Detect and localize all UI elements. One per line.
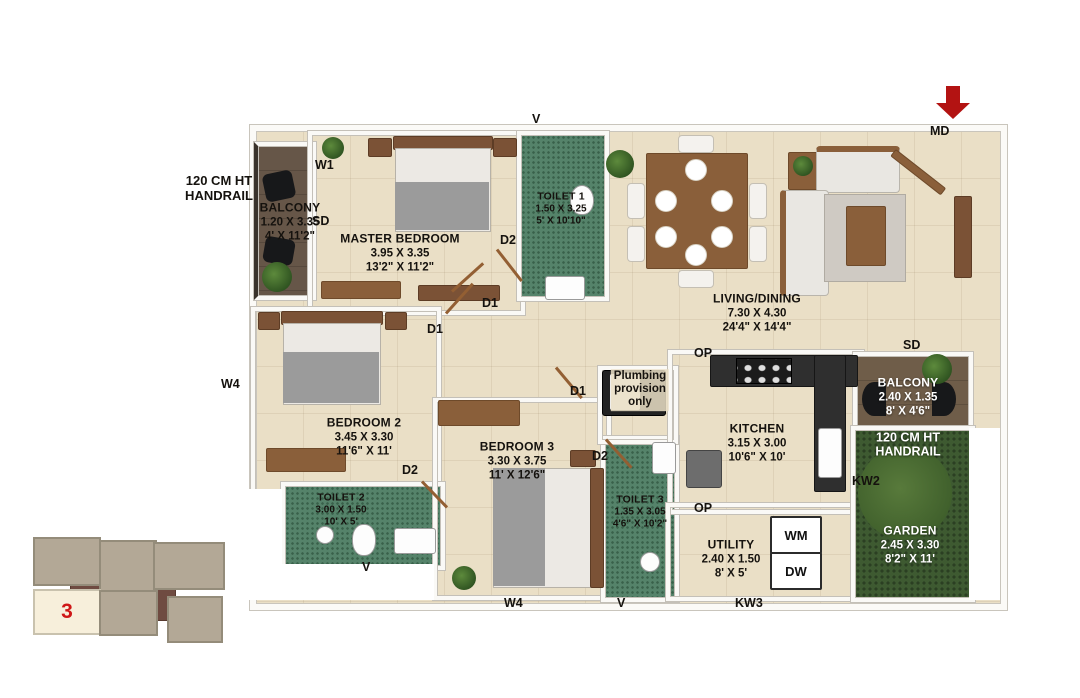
vent-label-toilet3: V [617,596,625,610]
room-name: BEDROOM 3 [480,440,554,455]
label-utility: UTILITY 2.40 X 1.50 8' X 5' [702,538,761,581]
door-label-d1-master: D1 [482,296,498,310]
bedroom3-blanket [493,468,545,586]
room-dim-metric: 1.50 X 3.25 [535,203,586,215]
room-name: TOILET 3 [613,493,667,506]
bedroom3-wardrobe [438,400,520,426]
room-name: GARDEN [881,524,940,539]
toilet2-wc [352,524,376,556]
room-dim-imperial: 11'6" X 11' [327,444,401,458]
plan-cutout [282,564,434,600]
toilet3-sink [652,442,676,474]
keyplan-unit [99,540,157,592]
door-label-d1-bedroom2: D1 [427,322,443,336]
plan-cutout [969,428,1000,600]
label-garden: GARDEN 2.45 X 3.30 8'2" X 11' [881,524,940,567]
room-dim-imperial: 10' X 5' [315,516,366,528]
plant [606,150,634,178]
door-label-d1-bedroom3: D1 [570,384,586,398]
kitchen-sink [818,428,842,478]
refrigerator [686,450,722,488]
dishwasher-label: DW [785,564,807,579]
dining-chair [627,226,645,262]
label-kitchen: KITCHEN 3.15 X 3.00 10'6" X 10' [728,422,787,465]
keyplan-unit [153,542,225,590]
room-dim-imperial: 8' X 4'6" [878,404,939,418]
dining-chair [678,270,714,288]
dining-chair [678,135,714,153]
room-dim-imperial: 10'6" X 10' [728,450,787,464]
keyplan-unit [99,590,158,636]
door-label-d2-toilet2: D2 [402,463,418,477]
room-name: TOILET 2 [315,491,366,504]
label-master-bedroom: MASTER BEDROOM 3.95 X 3.35 13'2" X 11'2" [340,232,459,275]
toilet3-shower [640,552,660,572]
label-toilet-1: TOILET 1 1.50 X 3.25 5' X 10'10" [535,190,586,227]
room-dim-metric: 3.15 X 3.00 [728,436,787,450]
note-line: HANDRAIL [875,445,940,459]
door-label-sd-living: SD [903,338,920,352]
nightstand [368,138,392,157]
washing-machine: WM [770,516,822,554]
keyplan-unit-number: 3 [61,600,73,624]
plan-cutout [246,489,282,600]
plant [452,566,476,590]
door-label-d2-toilet3: D2 [592,449,608,463]
plate [711,190,733,212]
entry-arrow-head [936,103,970,119]
room-dim-imperial: 8'2" X 11' [881,552,940,566]
room-name: UTILITY [702,538,761,553]
plant [793,156,813,176]
note-line: HANDRAIL [185,189,253,204]
room-dim-imperial: 4' X 11'2" [260,229,321,243]
toilet2-sink [394,528,436,554]
room-name: BEDROOM 2 [327,416,401,431]
washing-machine-label: WM [784,528,807,543]
entry-arrow-shaft [946,86,960,103]
window-label-w4-bottom: W4 [504,596,523,610]
door-label-sd-balcony: SD [312,214,329,228]
label-bedroom-3: BEDROOM 3 3.30 X 3.75 11' X 12'6" [480,440,554,483]
tv-unit [954,196,972,278]
keyplan-unit [33,537,101,586]
nightstand [493,138,517,157]
note-line: only [614,397,666,410]
room-dim-metric: 2.40 X 1.35 [878,390,939,404]
label-toilet-2: TOILET 2 3.00 X 1.50 10' X 5' [315,491,366,528]
note-handrail-garden: 120 CM HT HANDRAIL [875,431,940,460]
room-dim-imperial: 5' X 10'10" [535,215,586,227]
room-dim-metric: 1.35 X 3.05 [613,506,667,518]
sofa-horizontal [816,146,900,193]
plate [685,244,707,266]
vent-label-toilet2: V [362,560,370,574]
stove [736,358,792,384]
room-dim-imperial: 8' X 5' [702,566,761,580]
note-line: provision [614,383,666,396]
vent-label-toilet1: V [532,112,540,126]
room-name: LIVING/DINING [713,292,801,307]
floor-plan-page: WM DW BALCONY 1.20 X 3.35 4' X 11'2" MAS… [0,0,1080,698]
room-name: TOILET 1 [535,190,586,203]
note-line: 120 CM HT [185,174,253,189]
bedroom2-blanket [283,352,379,403]
window-label-w4-left: W4 [221,377,240,391]
room-dim-imperial: 4'6" X 10'2" [613,518,667,530]
plant [262,262,292,292]
sofa-vertical [780,190,829,296]
label-toilet-3: TOILET 3 1.35 X 3.05 4'6" X 10'2" [613,493,667,530]
label-living-dining: LIVING/DINING 7.30 X 4.30 24'4" X 14'4" [713,292,801,335]
plant [322,137,344,159]
window-label-w1: W1 [315,158,334,172]
label-bedroom-2: BEDROOM 2 3.45 X 3.30 11'6" X 11' [327,416,401,459]
room-dim-metric: 3.45 X 3.30 [327,430,401,444]
plate [655,190,677,212]
room-dim-imperial: 24'4" X 14'4" [713,320,801,334]
room-name: BALCONY [878,376,939,391]
opening-label-utility: OP [694,501,712,515]
room-name: KITCHEN [728,422,787,437]
room-name: MASTER BEDROOM [340,232,459,247]
door-label-d2-toilet1: D2 [500,233,516,247]
note-handrail-left: 120 CM HT HANDRAIL [185,174,253,204]
window-label-kw3: KW3 [735,596,763,610]
keyplan-unit [167,596,223,643]
toilet2-basin [316,526,334,544]
master-wardrobe [321,281,401,299]
master-bed-blanket [395,182,489,230]
nightstand [385,312,407,330]
toilet1-sink [545,276,585,300]
room-dim-metric: 7.30 X 4.30 [713,306,801,320]
room-dim-imperial: 11' X 12'6" [480,468,554,482]
door-label-md: MD [930,124,949,138]
dining-chair [749,226,767,262]
nightstand [258,312,280,330]
bedroom3-headboard [590,468,604,588]
dishwasher: DW [770,552,822,590]
dining-table [646,153,748,269]
room-dim-metric: 2.45 X 3.30 [881,538,940,552]
plate [655,226,677,248]
plate [711,226,733,248]
window-label-kw2: KW2 [852,474,880,488]
room-dim-metric: 3.95 X 3.35 [340,246,459,260]
label-balcony-living: BALCONY 2.40 X 1.35 8' X 4'6" [878,376,939,419]
room-dim-metric: 3.00 X 1.50 [315,504,366,516]
note-plumbing-provision: Plumbing provision only [611,369,669,411]
room-dim-metric: 2.40 X 1.50 [702,552,761,566]
room-dim-imperial: 13'2" X 11'2" [340,260,459,274]
opening-label-kitchen: OP [694,346,712,360]
note-line: 120 CM HT [875,431,940,445]
dining-chair [749,183,767,219]
dining-chair [627,183,645,219]
coffee-table [846,206,886,266]
room-dim-metric: 3.30 X 3.75 [480,454,554,468]
note-line: Plumbing [614,370,666,383]
room-utility [666,503,864,601]
plate [685,159,707,181]
entry-arrow [936,86,970,119]
keyplan-unit-highlighted: 3 [33,589,101,635]
